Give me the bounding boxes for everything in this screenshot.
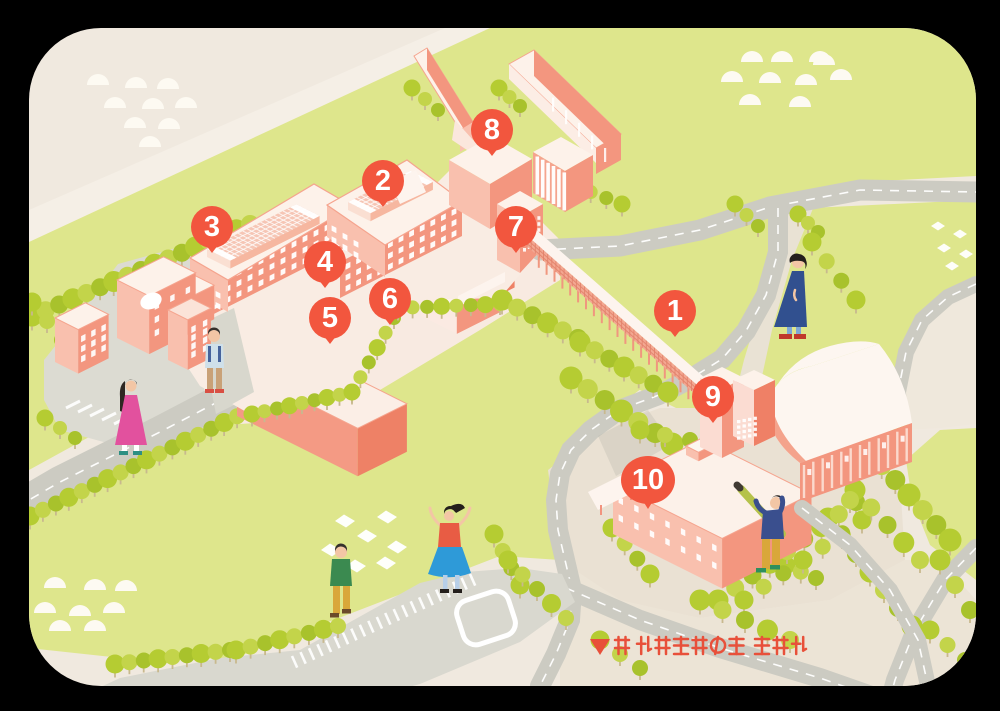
svg-text:10: 10 [632,464,664,496]
svg-text:8: 8 [484,114,500,146]
svg-text:4: 4 [317,246,333,278]
svg-text:5: 5 [322,302,338,334]
svg-text:6: 6 [382,283,398,315]
svg-text:9: 9 [705,381,721,413]
svg-text:3: 3 [204,211,220,243]
svg-text:1: 1 [667,295,683,327]
svg-text:7: 7 [508,211,524,243]
svg-text:2: 2 [375,165,391,197]
